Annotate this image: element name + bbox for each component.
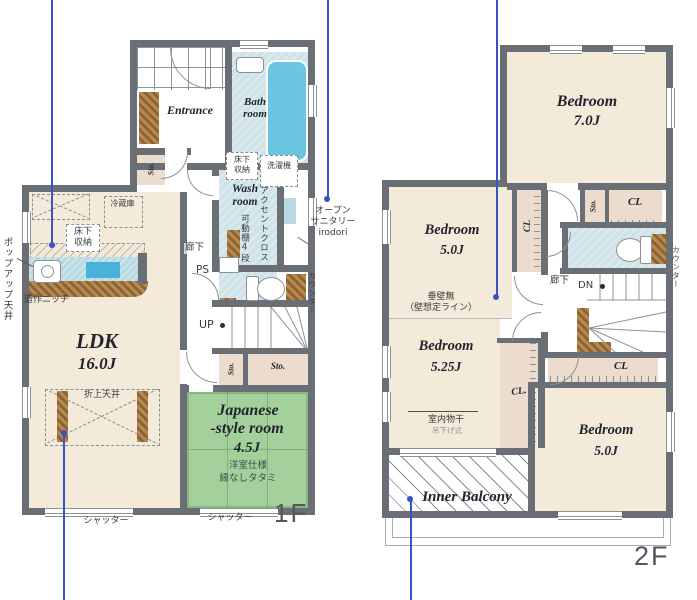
- popup-ceiling-label: ポップアップ天井: [2, 237, 12, 365]
- window: [240, 40, 268, 49]
- japanese-room-note1: 洋室仕様: [219, 461, 277, 472]
- bedroom4-label: Bedroom: [572, 423, 640, 439]
- washroom-door-gap: [212, 176, 219, 200]
- closet-top-label: CL: [622, 196, 648, 208]
- window: [550, 45, 582, 54]
- up-dot: [220, 323, 225, 328]
- underfloor-wash-line1: 床下: [227, 155, 257, 164]
- bath-counter: [236, 57, 264, 73]
- wall: [212, 300, 315, 307]
- bedroom2-label: Bedroom: [420, 223, 484, 239]
- bathroom-label: Bath room: [234, 96, 276, 120]
- storage2f-label: Sto.: [589, 200, 598, 213]
- wall: [538, 338, 545, 448]
- annotation-dot-sanitary: [324, 196, 330, 202]
- japanese-room-label-line2: -style room: [197, 420, 297, 438]
- toilet2f-tank: [640, 236, 652, 264]
- shoe-cabinet: [139, 92, 159, 144]
- storage-entrance-label: Sto.: [147, 163, 156, 176]
- wall: [22, 185, 137, 192]
- bedroom1-size: 7.0J: [565, 113, 609, 130]
- wall: [500, 52, 507, 183]
- window: [22, 387, 31, 418]
- japanese-room-size: 4.5J: [217, 440, 277, 457]
- underfloor-kitchen-line2: 収納: [67, 238, 99, 248]
- shutter-label-japanese: シャッター: [206, 513, 254, 523]
- closet1-label: CL: [523, 220, 533, 232]
- window: [558, 511, 622, 520]
- drying-label-line1: 室内物干: [422, 415, 470, 425]
- wall: [528, 382, 666, 388]
- annotation-line-nowall: [496, 0, 498, 297]
- hallway2f-label: 廊下: [549, 276, 570, 287]
- toilet1f-counter: [286, 274, 306, 303]
- toilet2f-counter: [652, 234, 666, 264]
- window: [308, 85, 317, 117]
- dn-label: DN: [578, 280, 593, 292]
- no-wall-line1: 垂壁無: [415, 292, 467, 302]
- ldk-label: LDK: [57, 330, 137, 353]
- inner-balcony-label: Inner Balcony: [407, 489, 527, 506]
- bedroom3-label: Bedroom: [414, 339, 478, 355]
- drying-rod-line: [408, 411, 478, 412]
- annotation-line-sanitary: [327, 0, 329, 199]
- hallway1f-label: 廊下: [184, 243, 205, 254]
- floor2-label: 2F: [634, 541, 670, 572]
- annotation-dot-nowall: [493, 294, 499, 300]
- open-sanitary-line1: オープン: [312, 206, 354, 216]
- underfloor-storage-wash: 床下 収納: [226, 152, 258, 180]
- bedroom4-size: 5.0J: [588, 444, 624, 459]
- wall: [578, 183, 673, 190]
- sanitary-counter: [284, 198, 296, 224]
- entrance-door-leaf: [210, 48, 211, 88]
- kitchen-stove: [86, 262, 120, 278]
- kitchen-island-end-wall: [138, 253, 147, 284]
- floor1-label: 1F: [274, 498, 308, 529]
- fridge-label: 冷蔵庫: [106, 199, 139, 208]
- closet1-hanger: [534, 189, 540, 270]
- annotation-line-kitchen: [51, 0, 53, 245]
- accent-cloth-label: アクセントクロス: [259, 186, 268, 270]
- japanese-room-note2: 縁なしタタミ: [212, 474, 284, 485]
- wall: [212, 348, 308, 354]
- bathroom-label-line1: Bath: [234, 96, 276, 108]
- window: [382, 346, 391, 378]
- kitchen-sink-faucet: [41, 265, 54, 278]
- toilet1f-door-arc: [192, 273, 219, 300]
- window: [382, 392, 391, 422]
- japanese-room-label-line1: Japanese: [202, 402, 294, 420]
- bedroom1-label: Bedroom: [545, 93, 629, 111]
- bedroom2-size: 5.0J: [436, 243, 468, 258]
- ps-box: [219, 257, 239, 273]
- wall: [225, 47, 232, 163]
- drying-label-line2: 吊下げ式: [429, 427, 465, 436]
- storage2-label: Sto.: [261, 362, 295, 372]
- window: [666, 88, 675, 128]
- underfloor-kitchen-line1: 床下: [67, 227, 99, 237]
- dn-dot: [600, 284, 605, 289]
- wall: [382, 180, 507, 187]
- wall: [605, 188, 609, 222]
- wall: [500, 45, 673, 52]
- window: [382, 210, 391, 244]
- storage1-label: Sto.: [227, 363, 236, 376]
- wall: [560, 268, 673, 274]
- no-wall-line2: （壁想定ライン）: [393, 303, 489, 313]
- underfloor-storage-kitchen: 床下 収納: [66, 224, 100, 252]
- counter2f-label: カウンター: [672, 246, 680, 296]
- entrance-label: Entrance: [158, 104, 222, 117]
- annotation-line-ceiling: [63, 433, 65, 600]
- wall: [130, 40, 315, 47]
- balcony-outline-inner: [392, 515, 664, 538]
- annotation-dot-balcony: [407, 496, 413, 502]
- assumed-wall-line: [389, 318, 512, 319]
- stairs1f-treads: [219, 307, 308, 352]
- window: [613, 45, 645, 54]
- window: [666, 412, 675, 452]
- annotation-dot-ceiling: [61, 430, 67, 436]
- toilet1f-bowl: [257, 277, 285, 301]
- window: [22, 212, 31, 243]
- window-balcony-door: [400, 448, 496, 457]
- open-sanitary-line2: サニタリー: [307, 217, 359, 227]
- wall: [243, 352, 248, 388]
- bedroom1-door-gap: [547, 183, 578, 190]
- wall: [130, 40, 137, 192]
- floorplan-canvas: 冷蔵庫 床下 収納 折上天井 Entrance: [0, 0, 697, 600]
- raised-ceiling-label: 折上天井: [73, 390, 131, 400]
- wall: [580, 188, 585, 222]
- ldk-size-label: 16.0J: [57, 355, 137, 374]
- annotation-dot-kitchen: [49, 242, 55, 248]
- underfloor-wash-line2: 収納: [227, 165, 257, 174]
- ps-label: PS: [196, 264, 209, 276]
- niche-label: 造作ニッチ: [24, 295, 69, 305]
- bedroom3-size: 5.25J: [423, 360, 469, 375]
- wash-shelf: [227, 230, 240, 258]
- stairs2f-newel-h: [577, 342, 611, 352]
- open-sanitary-line3: irodori: [313, 228, 353, 238]
- wall: [560, 222, 673, 228]
- counter1f-label: カウンター: [308, 272, 316, 318]
- bathroom-label-line2: room: [234, 108, 276, 120]
- laundry-label: 洗濯機: [261, 161, 297, 170]
- shutter-label-ldk: シャッター: [80, 516, 132, 526]
- raised-ceiling-beam-right: [137, 391, 148, 442]
- closet-bottom-label: CL: [608, 360, 634, 372]
- annotation-line-balcony: [410, 499, 412, 600]
- shelf-label: 可動棚4段: [240, 214, 249, 266]
- ceiling-feature-x: [32, 194, 88, 218]
- wall: [512, 187, 517, 272]
- up-label: UP: [199, 319, 214, 332]
- wall: [382, 511, 673, 518]
- japanese-door-gap: [189, 385, 213, 392]
